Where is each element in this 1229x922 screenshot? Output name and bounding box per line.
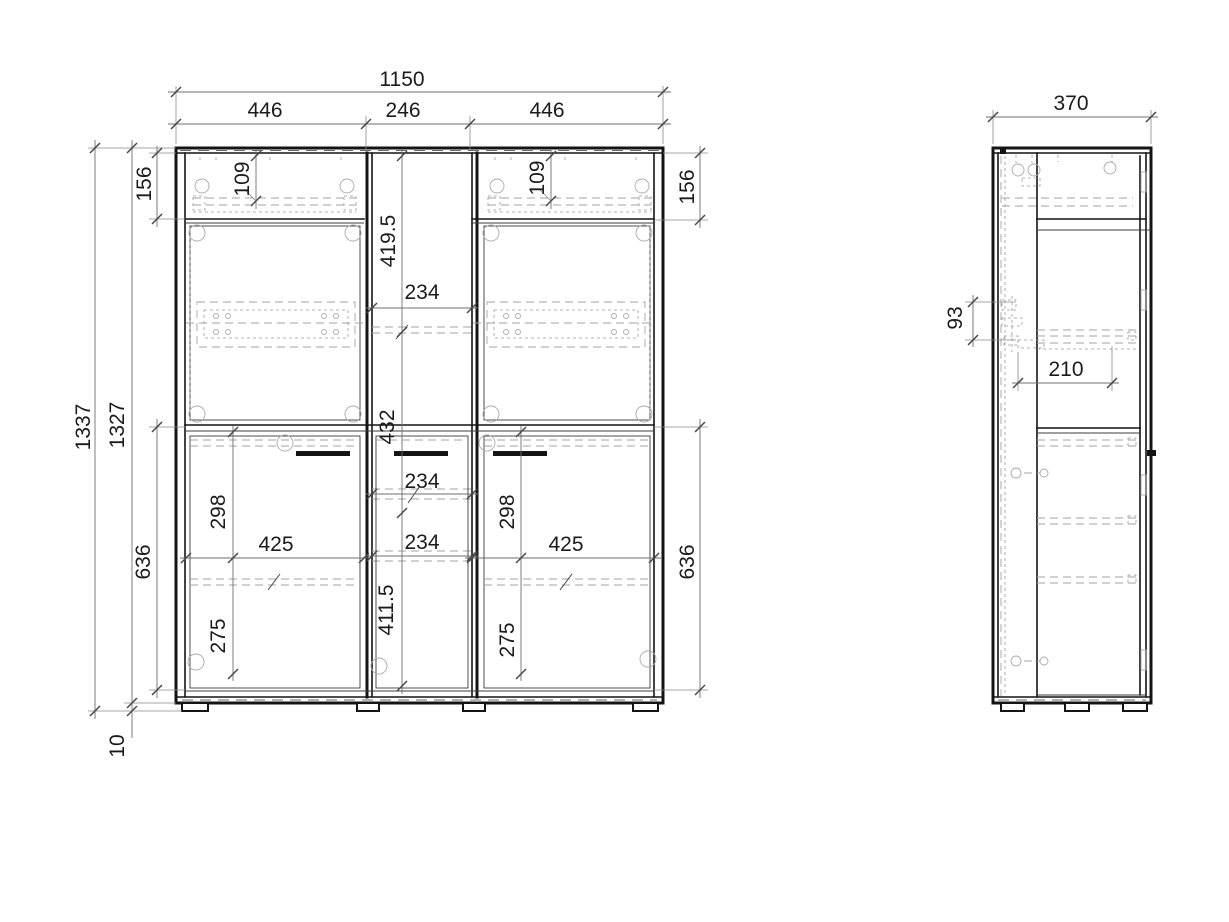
side-door-handle <box>1147 450 1156 456</box>
dim-door-left-lower: 275 <box>207 618 230 653</box>
dim-door-right-upper: 298 <box>496 494 519 529</box>
dim-top-section-left: 156 <box>133 166 156 201</box>
dim-center-width-2: 234 <box>404 470 439 493</box>
dim-top-section-right: 156 <box>676 169 699 204</box>
dim-center-width-1: 234 <box>404 281 439 304</box>
foot <box>633 703 658 711</box>
dim-total-height: 1337 <box>72 404 95 451</box>
handle-left-door <box>296 451 350 456</box>
foot <box>1065 703 1089 711</box>
dim-width-left: 446 <box>247 99 282 122</box>
dim-bottom-section-right: 636 <box>676 544 699 579</box>
dim-door-left-upper: 298 <box>207 494 230 529</box>
dim-door-left-width: 425 <box>258 533 293 556</box>
foot <box>463 703 485 711</box>
dim-bottom-section-left: 636 <box>132 544 155 579</box>
handle-right-door <box>493 451 547 456</box>
dim-width-right: 446 <box>529 99 564 122</box>
dim-feet-height: 10 <box>106 734 129 757</box>
dim-center-upper: 419.5 <box>377 215 400 268</box>
foot <box>1123 703 1147 711</box>
dim-door-right-width: 425 <box>548 533 583 556</box>
foot <box>1001 703 1024 711</box>
dim-depth-total: 370 <box>1053 92 1088 115</box>
dim-center-middle: 432 <box>376 409 399 444</box>
dim-center-lower: 411.5 <box>375 585 398 636</box>
cabinet-dimension-drawing: 1150 446 246 446 1337 1327 156 636 10 15… <box>0 0 1229 922</box>
dim-body-height: 1327 <box>106 402 129 449</box>
dim-drawer-left: 109 <box>231 161 254 196</box>
dim-overall-width: 1150 <box>379 68 424 91</box>
foot <box>357 703 379 711</box>
dim-hinge-offset: 93 <box>944 306 967 329</box>
dim-drawer-right: 109 <box>526 160 549 195</box>
foot <box>182 703 208 711</box>
dim-width-center: 246 <box>385 99 420 122</box>
dim-door-right-lower: 275 <box>496 622 519 657</box>
technical-drawing-page: 1150 446 246 446 1337 1327 156 636 10 15… <box>0 0 1229 922</box>
side-feet <box>1001 703 1147 711</box>
dim-center-width-3: 234 <box>404 531 439 554</box>
dim-shelf-depth: 210 <box>1048 358 1083 381</box>
